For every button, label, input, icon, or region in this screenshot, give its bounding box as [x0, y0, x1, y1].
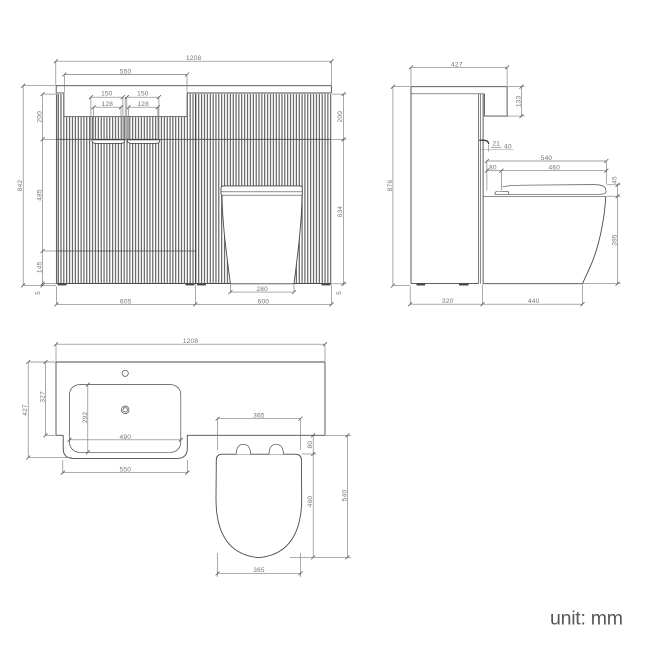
svg-text:365: 365: [253, 413, 265, 420]
svg-text:460: 460: [307, 496, 314, 508]
svg-text:128: 128: [137, 101, 149, 108]
svg-text:440: 440: [528, 298, 540, 305]
svg-text:460: 460: [549, 165, 561, 172]
svg-text:427: 427: [22, 404, 29, 416]
svg-text:5: 5: [336, 291, 343, 295]
svg-text:1208: 1208: [186, 55, 202, 62]
svg-text:540: 540: [342, 490, 349, 502]
svg-text:45: 45: [612, 176, 619, 184]
svg-text:292: 292: [82, 411, 89, 423]
svg-text:128: 128: [102, 101, 114, 108]
svg-text:842: 842: [17, 180, 24, 192]
svg-text:427: 427: [451, 61, 463, 68]
svg-text:605: 605: [120, 298, 132, 305]
svg-text:200: 200: [337, 111, 344, 123]
svg-text:150: 150: [101, 91, 113, 98]
svg-text:5: 5: [35, 291, 42, 295]
svg-text:150: 150: [137, 91, 149, 98]
svg-text:395: 395: [612, 234, 619, 246]
svg-text:485: 485: [37, 189, 44, 201]
svg-text:490: 490: [120, 434, 132, 441]
svg-text:80: 80: [307, 441, 314, 449]
svg-text:21: 21: [492, 140, 500, 147]
svg-text:280: 280: [256, 286, 268, 293]
svg-text:133: 133: [516, 95, 523, 107]
svg-text:550: 550: [120, 467, 132, 474]
svg-text:600: 600: [258, 298, 270, 305]
svg-text:550: 550: [120, 69, 132, 76]
svg-text:unit: mm: unit: mm: [550, 608, 623, 630]
svg-text:634: 634: [337, 206, 344, 218]
svg-text:1208: 1208: [183, 338, 199, 345]
svg-text:540: 540: [541, 155, 553, 162]
svg-text:327: 327: [40, 391, 47, 403]
svg-text:320: 320: [442, 298, 454, 305]
svg-text:145: 145: [37, 261, 44, 273]
svg-text:40: 40: [504, 143, 512, 150]
svg-text:365: 365: [253, 567, 265, 574]
svg-text:876: 876: [387, 180, 394, 192]
svg-text:80: 80: [489, 165, 497, 172]
svg-text:200: 200: [37, 111, 44, 123]
